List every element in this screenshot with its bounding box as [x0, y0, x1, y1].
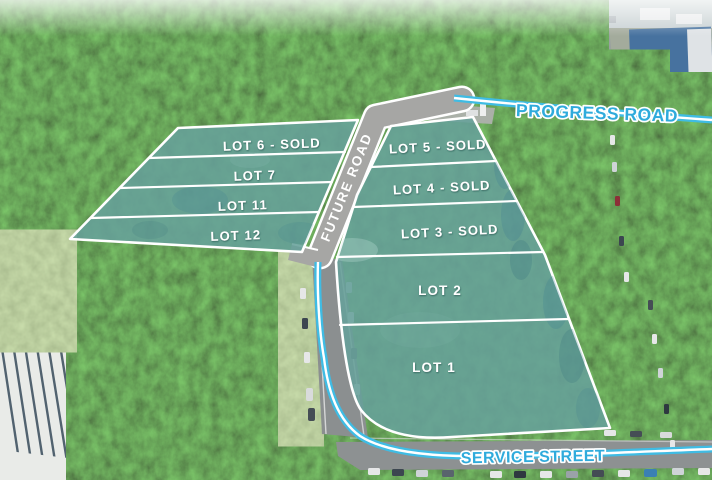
lot-2-label: LOT 2 [418, 283, 462, 298]
lot-12-label: LOT 12 [210, 227, 261, 244]
service-street-label: SERVICE STREET [461, 448, 606, 468]
lot-11-label: LOT 11 [218, 197, 268, 214]
site-map-svg: LOT 6 - SOLD LOT 7 LOT 11 LOT 12 LOT 5 -… [0, 0, 712, 480]
lot-1-label: LOT 1 [412, 360, 456, 375]
atmospheric-haze [0, 0, 712, 36]
aerial-site-map: LOT 6 - SOLD LOT 7 LOT 11 LOT 12 LOT 5 -… [0, 0, 712, 480]
lot-7-label: LOT 7 [233, 167, 276, 183]
